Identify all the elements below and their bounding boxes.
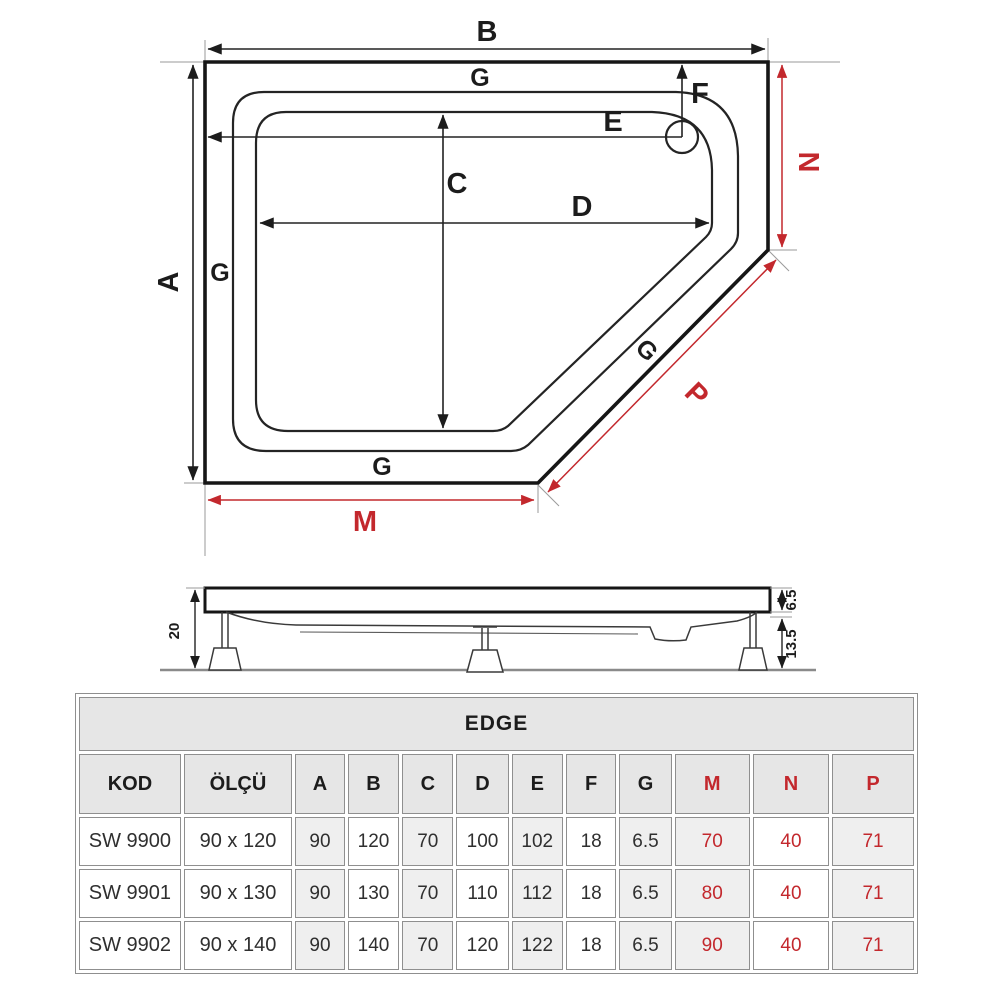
col-header-b: B [348, 754, 399, 814]
label-G-top: G [470, 64, 489, 92]
label-G-left: G [210, 259, 229, 287]
table-cell: 6.5 [619, 817, 671, 866]
tray-underside-inner-line [300, 632, 638, 634]
label-B: B [477, 16, 498, 48]
table-cell: 90 [295, 817, 345, 866]
table-cell: 90 x 120 [184, 817, 292, 866]
table-cell: 71 [832, 869, 914, 918]
label-G-bottom: G [372, 453, 391, 481]
table-cell: 18 [566, 869, 617, 918]
col-header-kod: KOD [79, 754, 181, 814]
label-N: N [792, 152, 824, 173]
extension-tick-p-top [768, 250, 789, 271]
label-M: M [353, 506, 377, 538]
table-cell: 6.5 [619, 869, 671, 918]
center-leg-foot [467, 650, 503, 672]
table-cell: 120 [456, 921, 508, 970]
table-title-row: EDGE [79, 697, 914, 751]
table-cell: 112 [512, 869, 563, 918]
table-cell: SW 9900 [79, 817, 181, 866]
table-cell: 90 x 130 [184, 869, 292, 918]
table-cell: 70 [675, 817, 750, 866]
label-E: E [603, 106, 622, 138]
table-cell: 18 [566, 921, 617, 970]
table-cell: 80 [675, 869, 750, 918]
label-F: F [691, 78, 709, 110]
label-6-5: 6.5 [783, 590, 800, 611]
table-cell: 140 [348, 921, 399, 970]
col-header-d: D [456, 754, 508, 814]
col-header-a: A [295, 754, 345, 814]
label-D: D [572, 191, 593, 223]
col-header-g: G [619, 754, 671, 814]
table-row: SW 9901 90 x 130 90 130 70 110 112 18 6.… [79, 869, 914, 918]
col-header-p: P [832, 754, 914, 814]
label-C: C [447, 168, 468, 200]
table-cell: SW 9901 [79, 869, 181, 918]
table-cell: 18 [566, 817, 617, 866]
table-cell: 90 [295, 921, 345, 970]
label-P: P [678, 376, 714, 412]
spec-table: EDGE KOD ÖLÇÜ A B C D E F G M N P SW 990… [75, 693, 918, 974]
table-cell: 110 [456, 869, 508, 918]
table-cell: 71 [832, 817, 914, 866]
table-cell: 40 [753, 817, 829, 866]
col-header-n: N [753, 754, 829, 814]
col-header-olcu: ÖLÇÜ [184, 754, 292, 814]
table-cell: 90 [675, 921, 750, 970]
table-cell: 71 [832, 921, 914, 970]
table-row: SW 9900 90 x 120 90 120 70 100 102 18 6.… [79, 817, 914, 866]
product-spec-sheet: B A G G G G C D E F M N P [0, 0, 990, 990]
technical-drawing: B A G G G G C D E F M N P [0, 0, 990, 690]
col-header-c: C [402, 754, 453, 814]
table-cell: 122 [512, 921, 563, 970]
table-row: SW 9902 90 x 140 90 140 70 120 122 18 6.… [79, 921, 914, 970]
table-cell: 100 [456, 817, 508, 866]
label-20: 20 [166, 623, 183, 640]
table-cell: 6.5 [619, 921, 671, 970]
table-cell: 70 [402, 869, 453, 918]
table-cell: 90 x 140 [184, 921, 292, 970]
tray-slab-side [205, 588, 770, 612]
table-cell: 70 [402, 817, 453, 866]
col-header-e: E [512, 754, 563, 814]
left-leg-foot [209, 648, 241, 670]
table-cell: 102 [512, 817, 563, 866]
table-title: EDGE [79, 697, 914, 751]
table-header-row: KOD ÖLÇÜ A B C D E F G M N P [79, 754, 914, 814]
table-cell: 70 [402, 921, 453, 970]
table-cell: SW 9902 [79, 921, 181, 970]
col-header-m: M [675, 754, 750, 814]
table-cell: 90 [295, 869, 345, 918]
label-13-5: 13.5 [783, 629, 800, 658]
label-A: A [153, 271, 185, 292]
table-cell: 40 [753, 921, 829, 970]
table-cell: 120 [348, 817, 399, 866]
right-leg-foot [739, 648, 767, 670]
side-elevation: 20 6.5 13.5 [160, 588, 816, 672]
table-cell: 40 [753, 869, 829, 918]
col-header-f: F [566, 754, 617, 814]
table-cell: 130 [348, 869, 399, 918]
extension-tick-p-bottom [538, 485, 559, 506]
